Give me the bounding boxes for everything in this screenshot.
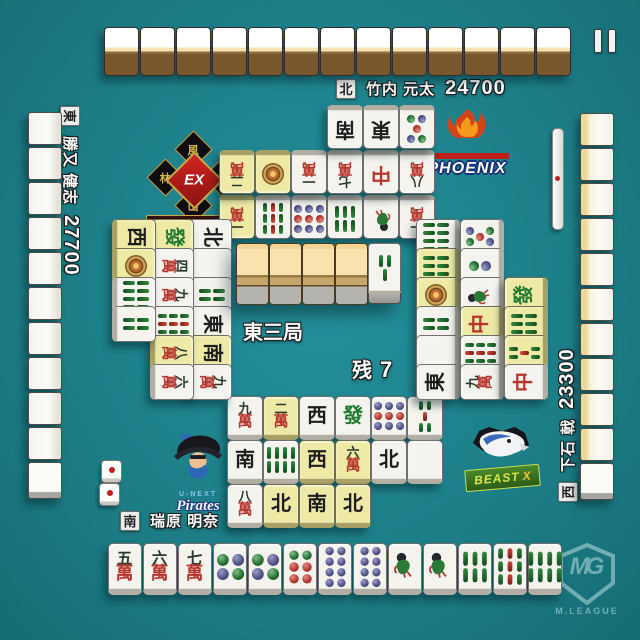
pin-row [325,546,345,554]
pin-dot [262,163,284,185]
pin-dot [267,554,279,566]
sou-stick [181,322,190,326]
remaining-count: 7 [380,357,392,382]
pin-dot [337,578,345,586]
mleague-shield-icon: MG [558,543,616,605]
north-player-name: 竹内 元太 [366,78,435,99]
pin-dot [419,115,427,123]
sou-stick [379,255,383,267]
tile-1s[interactable] [423,543,457,595]
discard-row-north-2: 二萬一萬七萬中八萬 [219,150,435,194]
sou-row [263,215,283,224]
sou-row [487,343,496,363]
sou-stick [437,256,449,260]
sou-stick [509,355,518,359]
sou-stick [291,461,295,473]
sou-stick [170,322,179,326]
pin-dot [325,546,333,554]
sou-row [383,269,387,281]
sou-row [511,314,523,334]
tile-back [392,27,427,76]
tile-9s[interactable] [493,543,527,595]
rotated-tile-slot: 六萬 [150,367,194,396]
tile-face: 南 [202,343,222,363]
sou-stick [263,226,267,235]
man-face: 九萬 [198,374,226,389]
man-face: 九萬 [237,402,252,430]
tile-face: 八萬 [410,160,425,188]
rotated-tile-slot [416,251,460,280]
wall-tile [580,393,614,426]
pause-button[interactable] [594,29,616,53]
pin-dot [396,412,404,420]
pin-dot [302,550,311,559]
tile-S: 南 [299,484,335,528]
tile-face: 南 [335,119,355,139]
sou-row [267,447,295,459]
tile-8m: 八萬 [227,484,263,528]
sou-row [267,461,295,473]
man-face: 八萬 [410,160,425,188]
phoenix-banner [425,153,509,159]
sou-stick [343,220,347,232]
rotated-tile-slot: 北 [188,222,232,251]
wall-tile [28,287,62,320]
wall-tile [28,252,62,285]
sou-stick [159,314,168,318]
sou-stick [283,461,287,473]
sou-stick [517,548,522,559]
tile-face: 北 [379,450,399,470]
sou-stick [137,318,149,322]
man-face: 五萬 [116,550,134,583]
west-player-label: 西 下石 戟 23300 [556,348,579,502]
pin-dot [337,557,345,565]
north-hand [104,27,571,76]
watermark-monogram-g: G [586,553,605,580]
sou-stick [528,551,533,565]
sou-stick [538,568,543,582]
tile-face: 發 [164,227,184,247]
east-player-score: 27700 [59,215,82,276]
pin-row [374,402,404,410]
tile-face [498,547,522,586]
tile-N: 北 [335,484,371,528]
rotated-tile-slot [504,338,548,367]
rotated-tile-slot [416,222,460,251]
sou-stick [279,226,283,235]
tile-9p [371,396,407,440]
pin-dot [374,412,382,420]
wall-tile [28,147,62,180]
tile-face: 六萬 [160,374,188,389]
pin-dot [267,568,279,580]
discard-row-north-3: 南東 [327,105,435,149]
rotated-tile-slot: 中 [460,309,504,338]
pin-dot [325,568,333,576]
tile-back [464,27,499,76]
remaining-label: 残 [352,360,372,382]
sou-row [159,314,168,334]
sou-stick [423,231,435,235]
tile-8s [263,440,299,484]
sou-stick [181,330,190,334]
discard-row-south-3: 八萬北南北 [227,484,371,528]
sou-stick [263,204,267,213]
pin-row [289,574,311,583]
pin-dot [316,215,324,223]
tile-back [536,27,571,76]
sou-stick [525,322,537,326]
pin-dot [294,205,302,213]
tile-4p[interactable] [213,543,247,595]
tile-face [393,551,417,582]
pin-row [481,261,491,271]
tile-P [407,440,443,484]
rotated-tile-slot: 發 [150,222,194,251]
tile-back [104,27,139,76]
pirate-icon [167,430,229,486]
tile-face: 東 [371,119,391,139]
tile-face [122,281,150,309]
pin-dot [385,422,393,430]
tile-5m[interactable]: 五萬 [108,543,142,595]
north-player-label: 北 竹内 元太 24700 [336,77,506,100]
tile-face [360,545,380,587]
tile-4p[interactable] [248,543,282,595]
sou-stick [509,347,518,351]
rotated-tile-slot: 九萬 [188,367,232,396]
sou-row [528,551,561,565]
tile-face: 九萬 [237,402,252,430]
pin-row [466,228,474,247]
sou-row [437,223,449,251]
tile-1p [255,150,291,194]
sou-stick [487,351,496,355]
north-player-score: 24700 [445,77,506,100]
tile-face: 七萬 [186,550,204,583]
west-player-name: 下石 戟 [557,419,578,472]
pin-dot [251,568,263,580]
pin-dot [419,135,427,143]
sou-row [528,568,561,582]
sou-stick [199,289,211,293]
tile-face [465,228,495,247]
sou-stick [437,239,449,243]
tile-face: 東 [202,314,222,334]
sou-stick [335,206,339,218]
pin-dot [408,135,416,143]
sou-stick [387,255,391,267]
sou-row [463,551,487,565]
west-player-score: 23300 [556,348,579,409]
sou-row [498,561,522,572]
sou-stick [498,561,503,572]
rotated-tile-slot: 東 [416,367,460,396]
rotated-tile-slot [460,251,504,280]
tile-E: 東 [363,105,399,149]
tile-face [251,552,278,580]
pin-row [251,554,278,566]
discard-row-south-1: 九萬二萬西發 [227,396,443,440]
beast-banner: BEASTX [464,464,540,492]
sou-stick [170,314,179,318]
pause-icon [608,29,616,53]
tile-6s[interactable] [458,543,492,595]
tiles-remaining: 残7 [352,354,392,383]
sou-stick [137,289,149,293]
tile-face: 北 [343,494,363,514]
sou-stick [213,297,225,301]
tile-face [122,318,150,330]
tile-9s [255,195,291,239]
pin-dot [396,422,404,430]
wall-tile [580,358,614,391]
tile-back [212,27,247,76]
man-face: 九萬 [466,375,494,390]
sou-stick [487,359,496,363]
sou-stick [275,461,279,473]
sou-stick [437,272,449,276]
pin-dot [385,412,393,420]
rotated-tile-slot: 中 [504,367,548,396]
dead-wall-tile [236,243,269,305]
sou-row [137,318,149,330]
tile-3s [368,243,401,293]
tile-face [216,552,243,580]
sou-stick [557,551,562,565]
tile-8p[interactable] [318,543,352,595]
pin-row [325,568,345,576]
tile-1m: 一萬 [291,150,327,194]
wall-tile [580,463,614,500]
sou-row [437,256,449,276]
pin-dot [374,422,382,430]
pin-dot [325,557,333,565]
pause-icon [594,29,602,53]
pin-dot [216,554,228,566]
rotated-tile-slot: 發 [504,280,548,309]
sou-stick [419,401,423,410]
east-player-name: 勝又 健志 [60,136,81,205]
pin-dot [372,557,380,565]
tile-face [374,401,404,431]
tile-face: 九萬 [198,374,226,389]
wall-tile [28,357,62,390]
sou-stick [437,264,449,268]
seat-badge-west: 西 [558,482,578,502]
tile-face: 六萬 [151,550,169,583]
wall-tile [28,217,62,250]
dead-wall-tile [302,243,335,305]
sou-row [531,347,540,359]
rotated-tile-slot [112,280,156,309]
tile-S: 南 [227,440,263,484]
riichi-stick-dot [555,176,560,181]
tile-N: 北 [371,440,407,484]
tile-2m: 二萬 [263,396,299,440]
pin-dot [360,568,368,576]
sou-stick [476,359,485,363]
pin-row [325,578,345,586]
seat-badge-north: 北 [336,79,356,99]
rotated-tile-slot: 南 [188,338,232,367]
pin-dot [316,205,324,213]
sou-stick [498,548,503,559]
wall-left [28,112,62,499]
pin-dot [305,215,313,223]
pin-row [408,135,427,143]
pin-row [374,412,404,420]
sou-row [437,318,449,330]
rotated-tile-slot: 九萬 [150,280,194,309]
sou-stick [383,269,387,281]
pin-dot [232,554,244,566]
rotated-tile-slot: 東 [188,309,232,338]
pin-row [251,568,278,580]
tile-N: 北 [263,484,299,528]
sou-stick [473,568,478,582]
sou-stick [498,574,503,585]
sou-stick [482,551,487,565]
tile-8s[interactable] [528,543,562,595]
man-face: 七萬 [338,160,353,188]
dead-wall-tile [269,243,302,305]
tile-back [284,27,319,76]
sou-stick [351,206,355,218]
wall-tile [28,182,62,215]
tile-face: 北 [202,227,222,247]
tile-face: 九萬 [160,287,188,302]
tile-7m[interactable]: 七萬 [178,543,212,595]
sou-row [525,314,537,334]
wall-tile [580,428,614,461]
tile-9m: 九萬 [188,364,232,400]
sou-stick [351,220,355,232]
sou-stick [283,447,287,459]
tile-face [294,204,324,234]
sou-stick [427,401,431,410]
sou-stick [423,264,435,268]
sou-stick [423,326,435,330]
seat-badge-south: 南 [120,511,140,531]
discard-row-west-2: 中九萬 [460,222,504,396]
tile-8p[interactable] [353,543,387,595]
sou-stick [159,322,168,326]
tile-6m[interactable]: 六萬 [143,543,177,595]
tile-face: 中 [371,164,391,184]
man-face: 二萬 [273,402,288,430]
tile-1s[interactable] [388,543,422,595]
rotated-tile-slot [416,280,460,309]
man-face: 六萬 [345,446,360,474]
sou-stick [137,326,149,330]
tile-6m: 六萬 [335,440,371,484]
sou-stick [423,239,435,243]
tile-face [263,203,283,236]
sou-stick [508,574,513,585]
discard-row-south-2: 南西六萬北 [227,440,443,484]
tile-9m: 九萬 [460,364,504,400]
tile-1s [363,195,399,239]
sou-row [335,206,355,218]
sou-stick [465,351,474,355]
sou-stick [423,412,427,421]
pin-dot [294,225,302,233]
tile-face: 七萬 [338,160,353,188]
sou-row [419,423,431,432]
rotated-tile-slot [188,251,232,280]
pin-row [476,233,484,241]
sou-row [423,412,427,421]
tile-face [371,206,391,232]
sou-stick [267,447,271,459]
man-face: 八萬 [237,490,252,518]
tile-face: 西 [126,227,146,247]
sou-stick [525,314,537,318]
sou-row [335,220,355,232]
tile-9p [291,195,327,239]
dora-tile-base [368,293,401,304]
tile-face [267,446,295,474]
riichi-stick [552,128,564,230]
wall-tile [580,323,614,356]
rotated-tile-slot [460,280,504,309]
sou-stick [279,204,283,213]
tile-back [320,27,355,76]
tile-face [158,314,191,334]
tile-back [356,27,391,76]
tile-6p[interactable] [283,543,317,595]
pin-dot [476,233,484,241]
rotated-tile-slot [150,309,194,338]
sou-stick [123,281,135,285]
sou-stick [437,326,449,330]
man-face: 二萬 [230,160,245,188]
sou-row [181,314,190,334]
sou-stick [275,447,279,459]
tile-2m: 二萬 [219,150,255,194]
pin-row [360,546,380,554]
pin-row [360,568,380,576]
sou-row [199,289,211,301]
sou-row [509,347,518,359]
pin-dot [466,239,474,247]
sou-stick [538,551,543,565]
tile-face [289,549,311,584]
dice [99,483,120,506]
dead-wall [236,243,401,305]
sou-stick [159,330,168,334]
sou-stick [473,551,478,565]
discard-row-east-3: 西 [112,222,156,338]
sou-stick [557,568,562,582]
tile-8m: 八萬 [399,150,435,194]
tile-face [425,284,447,306]
sou-stick [465,343,474,347]
sou-stick [423,223,435,227]
pin-dot [374,402,382,410]
pin-dot [372,568,380,576]
sou-stick [263,215,267,224]
tile-back [428,27,463,76]
pin-row [360,578,380,586]
pin-row [360,557,380,565]
tile-face [467,285,493,305]
pin-dot [360,557,368,565]
dora-indicator [368,243,401,305]
phoenix-flame-icon [444,108,490,148]
